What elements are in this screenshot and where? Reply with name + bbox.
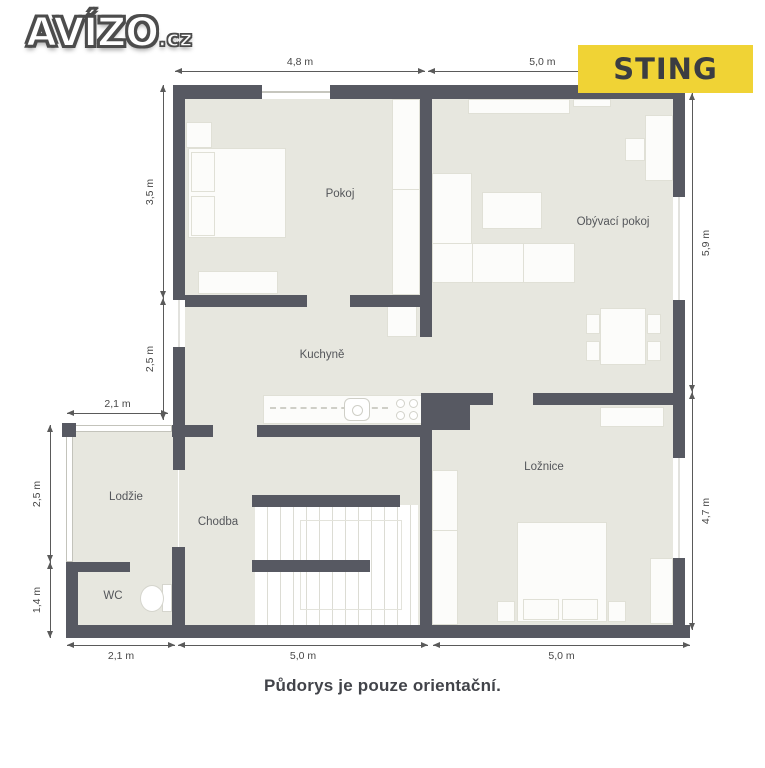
dimension-label: 5,0 m xyxy=(290,650,316,662)
dimension-label: 4,8 m xyxy=(287,56,313,68)
sideboard xyxy=(468,99,570,114)
wall-chodba-loznice xyxy=(420,437,432,625)
dining-table xyxy=(600,308,646,365)
nightstand xyxy=(186,122,212,148)
dimension-line: 4,7 m xyxy=(692,392,693,630)
balcony-railing xyxy=(66,425,73,562)
wall-wc-left xyxy=(66,562,78,638)
stove-burner xyxy=(409,411,418,420)
stove-burner xyxy=(396,411,405,420)
wardrobe xyxy=(392,99,420,295)
room-label-wc: WC xyxy=(103,590,122,602)
stove-burner xyxy=(409,399,418,408)
logo-suffix: .cz xyxy=(158,27,192,52)
chair xyxy=(647,341,661,361)
sofa-seat-divider xyxy=(523,243,524,283)
dimension-line: 3,5 m xyxy=(163,85,164,298)
dimension-label: 2,5 m xyxy=(31,480,43,506)
room-label-chodba: Chodba xyxy=(198,516,238,528)
wardrobe-divider xyxy=(392,189,420,190)
dimension-line: 5,9 m xyxy=(692,93,693,392)
wardrobe-divider xyxy=(432,530,458,531)
pillow xyxy=(523,599,559,620)
pillow xyxy=(562,599,598,620)
dimension-label: 5,0 m xyxy=(529,56,555,68)
cabinet xyxy=(573,99,611,107)
floorplan-page: AVÍZO.cz STING xyxy=(0,0,765,768)
logo-text: AVÍZO xyxy=(26,10,158,56)
dimension-label: 5,9 m xyxy=(700,229,712,255)
window xyxy=(673,458,685,558)
dimension-line: 4,8 m xyxy=(175,71,425,72)
wall-wc-top xyxy=(66,562,130,572)
avizo-logo: AVÍZO.cz xyxy=(26,10,192,56)
room-label-pokoj: Pokoj xyxy=(326,188,355,200)
sting-brand-banner: STING xyxy=(578,45,753,93)
fridge xyxy=(387,305,417,337)
wardrobe xyxy=(650,558,673,624)
room-label-lodzie: Lodžie xyxy=(109,491,143,503)
wardrobe xyxy=(432,470,458,625)
dimension-line: 2,5 m xyxy=(50,425,51,562)
wall-lodzie-corner xyxy=(62,423,76,437)
tv-stand xyxy=(645,115,673,181)
toilet xyxy=(140,585,164,612)
nightstand xyxy=(608,601,626,622)
dimension-label: 2,1 m xyxy=(104,398,130,410)
dimension-line: 2,1 m xyxy=(67,645,175,646)
wall-bottom xyxy=(66,625,690,638)
wall-pokoj-obyvaci xyxy=(420,85,432,337)
wall-left xyxy=(173,85,185,470)
wall-kuchyne-chodba xyxy=(172,425,213,437)
dimension-label: 2,1 m xyxy=(108,650,134,662)
kitchen-sink xyxy=(344,398,370,421)
window xyxy=(173,300,185,347)
room-label-loznice: Ložnice xyxy=(524,461,564,473)
sofa xyxy=(432,243,575,283)
dimension-line: 5,0 m xyxy=(178,645,428,646)
dresser xyxy=(198,271,278,294)
nightstand xyxy=(497,601,515,622)
dimension-line: 2,5 m xyxy=(163,298,164,420)
wall-obyvaci-loznice xyxy=(533,393,685,405)
dimension-label: 1,4 m xyxy=(31,587,43,613)
wall-kuchyne-chodba xyxy=(257,425,432,437)
stove-burner xyxy=(396,399,405,408)
window xyxy=(262,85,330,99)
dimension-label: 3,5 m xyxy=(144,178,156,204)
shelf xyxy=(600,407,664,427)
dimension-label: 5,0 m xyxy=(548,650,574,662)
pillow xyxy=(191,152,215,192)
wall-pokoj-kuchyne xyxy=(173,295,307,307)
chair xyxy=(586,341,600,361)
balcony-railing xyxy=(73,425,172,432)
dimension-line: 5,0 m xyxy=(433,645,690,646)
coffee-table xyxy=(482,192,542,229)
counter-dash-line xyxy=(270,407,388,409)
window xyxy=(673,197,685,300)
pillow xyxy=(191,196,215,236)
dimension-label: 2,5 m xyxy=(144,346,156,372)
dimension-line: 1,4 m xyxy=(50,562,51,638)
sofa-seat-divider xyxy=(472,243,473,283)
disclaimer-text: Půdorys je pouze orientační. xyxy=(0,676,765,696)
chair xyxy=(647,314,661,334)
wall-wc-right xyxy=(172,547,185,638)
stair-handrail xyxy=(252,560,370,572)
dimension-label: 4,7 m xyxy=(700,498,712,524)
wall-stairs-top xyxy=(252,495,400,507)
dimension-line: 2,1 m xyxy=(67,413,168,414)
tv xyxy=(625,138,645,161)
room-label-obyvaci-pokoj: Obývací pokoj xyxy=(577,216,650,228)
chair xyxy=(586,314,600,334)
room-label-kuchyne: Kuchyně xyxy=(300,349,345,361)
